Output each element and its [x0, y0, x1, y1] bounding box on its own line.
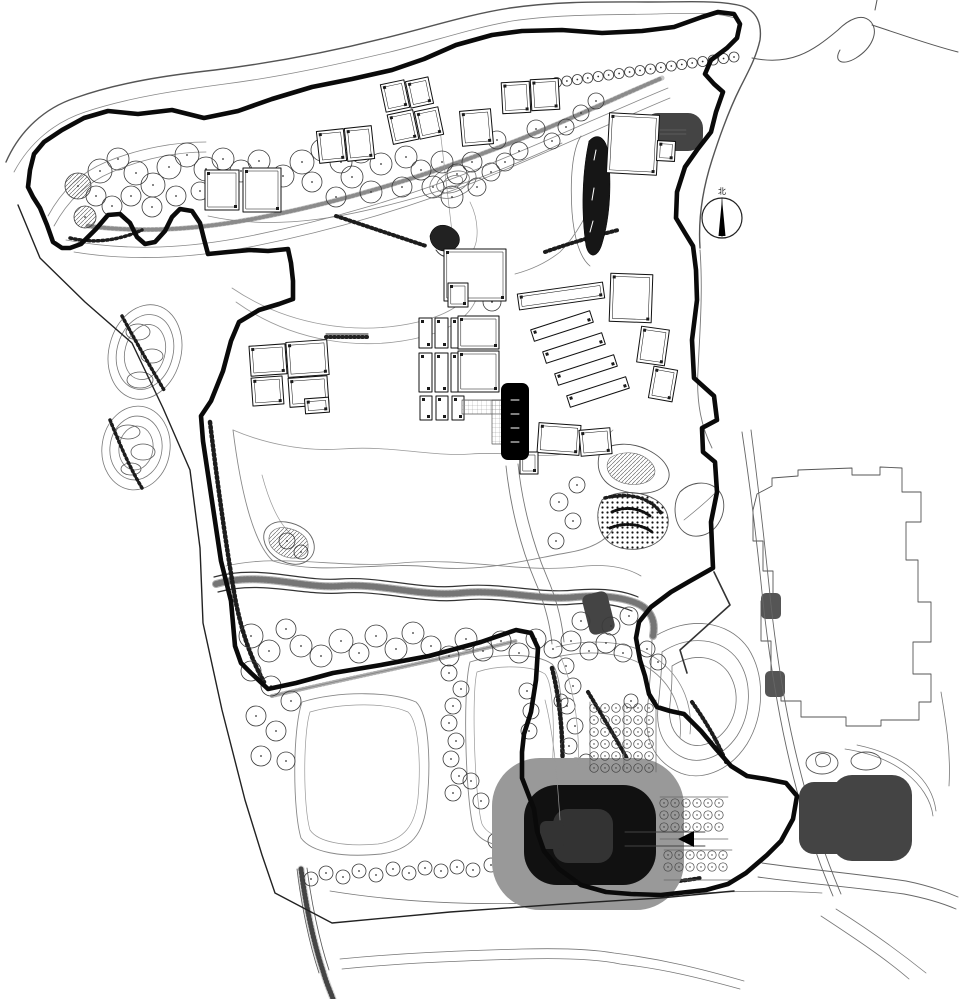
north-label: 北	[718, 187, 726, 196]
site-plan-drawing: 北	[0, 0, 960, 999]
architectural-site-plan: 北	[0, 0, 960, 999]
